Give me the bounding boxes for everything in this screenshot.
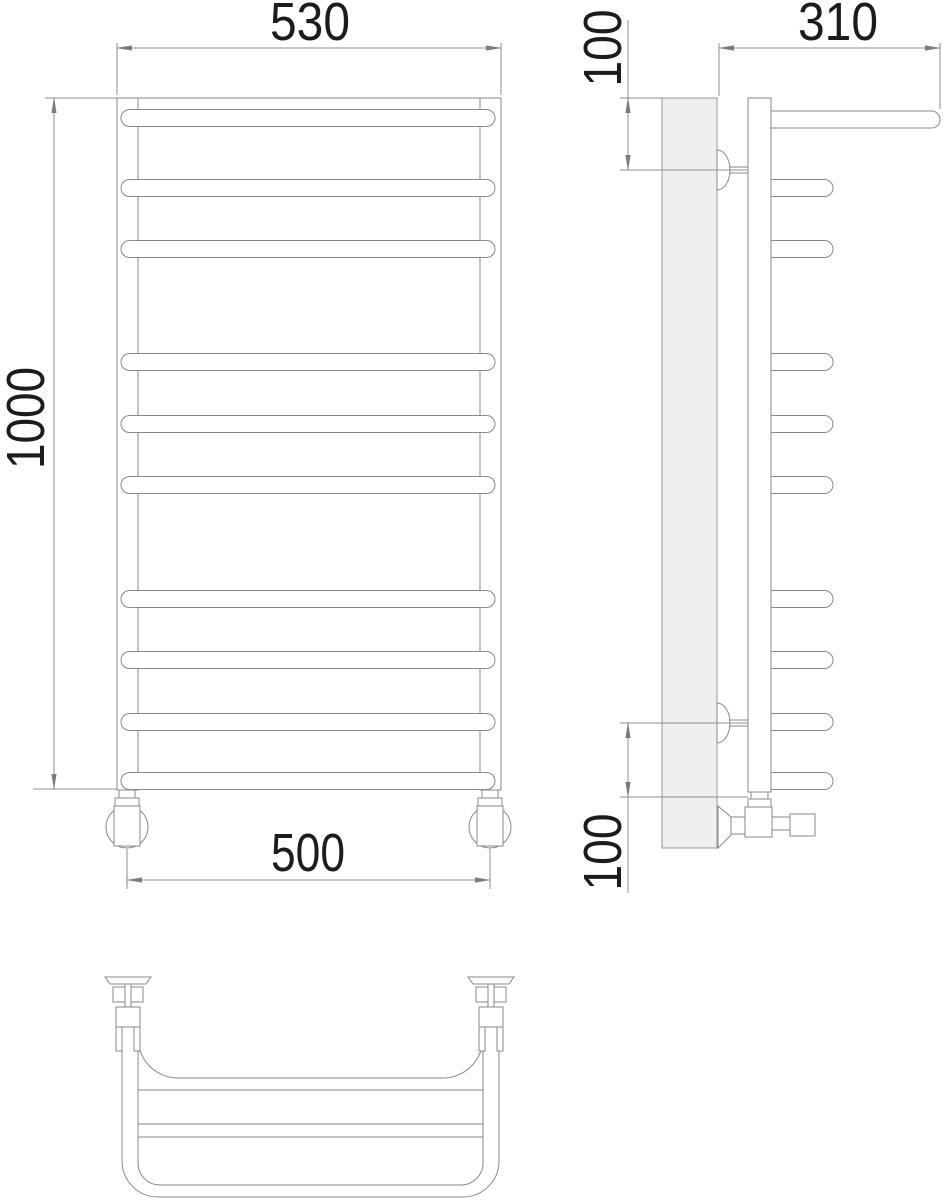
- side-valve-assembly: [718, 792, 815, 848]
- dimension-label-530: 530: [270, 0, 350, 52]
- drawing-canvas: 530 1000 500: [0, 0, 943, 1200]
- rail-stub: [771, 241, 833, 258]
- towel-rail: [121, 477, 495, 494]
- dimension-side-bottom-offset: 100: [573, 723, 748, 893]
- towel-rail-drawing: 530 1000 500: [0, 0, 943, 1200]
- bracket-nut: [131, 987, 143, 1002]
- dimension-label-100-top: 100: [573, 10, 633, 87]
- dimension-front-width-top: 530: [117, 0, 501, 95]
- bracket-tab: [134, 1027, 140, 1051]
- valve-fitting: [751, 792, 768, 799]
- towel-rail: [121, 354, 495, 371]
- valve-nut: [748, 799, 771, 807]
- towel-rail: [121, 241, 495, 258]
- pipe-connector: [731, 817, 745, 834]
- towel-rail: [121, 110, 495, 127]
- right-valve-connection: [469, 790, 511, 848]
- wall-section: [662, 98, 717, 848]
- dimension-label-310: 310: [798, 0, 878, 52]
- rail-stub: [771, 416, 833, 433]
- shelf-tube-inner: [138, 1030, 483, 1185]
- bracket-block: [479, 1007, 503, 1027]
- towel-rail: [121, 591, 495, 608]
- left-bracket-plan: [105, 977, 151, 1051]
- bracket-nut: [113, 987, 125, 1002]
- towel-rail: [121, 652, 495, 669]
- valve-fitting: [119, 790, 135, 798]
- shelf-rail-side: [771, 111, 940, 128]
- rail-stub: [771, 354, 833, 371]
- bottom-view: [105, 977, 514, 1197]
- rail-stub: [771, 714, 833, 731]
- towel-rail: [121, 714, 495, 731]
- right-bracket-plan: [468, 977, 514, 1051]
- rail-fillet-left: [138, 1038, 178, 1078]
- bracket-tab: [497, 1027, 503, 1051]
- dimension-side-depth: 310: [719, 0, 940, 109]
- rail-stub: [771, 773, 833, 790]
- valve-body: [477, 806, 503, 846]
- towel-rail: [121, 773, 495, 790]
- rail-stub: [771, 477, 833, 494]
- rail-stub: [771, 591, 833, 608]
- dimension-front-height: 1000: [0, 98, 117, 789]
- valve-stem: [772, 817, 790, 830]
- pipe-escutcheon: [718, 806, 731, 848]
- bracket-tab: [479, 1027, 485, 1051]
- bracket-tab: [116, 1027, 122, 1051]
- towel-rail: [121, 416, 495, 433]
- bracket-flange: [105, 977, 151, 984]
- shelf-tube-outer: [122, 1030, 499, 1197]
- front-view: 530 1000 500: [0, 0, 511, 889]
- dimension-label-1000: 1000: [0, 367, 56, 469]
- bracket-nut: [494, 987, 506, 1002]
- bracket-block: [116, 1007, 140, 1027]
- right-collector-tube: [480, 98, 501, 790]
- valve-body-side: [745, 807, 772, 837]
- valve-nut: [115, 798, 139, 806]
- bracket-stem: [488, 984, 494, 1007]
- dimension-label-100-bottom: 100: [573, 814, 633, 891]
- towel-rails-front: [121, 110, 495, 790]
- valve-nut: [478, 798, 502, 806]
- left-collector-tube: [117, 98, 138, 790]
- dimension-side-top-offset: 100: [573, 10, 748, 171]
- bracket-stem: [125, 984, 131, 1007]
- bracket-flange: [468, 977, 514, 984]
- valve-body: [114, 806, 140, 846]
- dimension-label-500: 500: [271, 823, 345, 883]
- rail-fillet-right: [443, 1038, 483, 1078]
- left-valve-connection: [106, 790, 148, 848]
- dimension-front-width-bottom: 500: [127, 823, 490, 889]
- side-view: 310 100 100: [573, 0, 940, 893]
- collector-tube-side: [748, 98, 771, 792]
- valve-handle: [790, 814, 815, 836]
- bracket-nut: [476, 987, 488, 1002]
- rail-stubs-side: [771, 180, 833, 790]
- valve-fitting: [482, 790, 498, 798]
- rail-stub: [771, 180, 833, 197]
- towel-rail: [121, 180, 495, 197]
- rail-stub: [771, 652, 833, 669]
